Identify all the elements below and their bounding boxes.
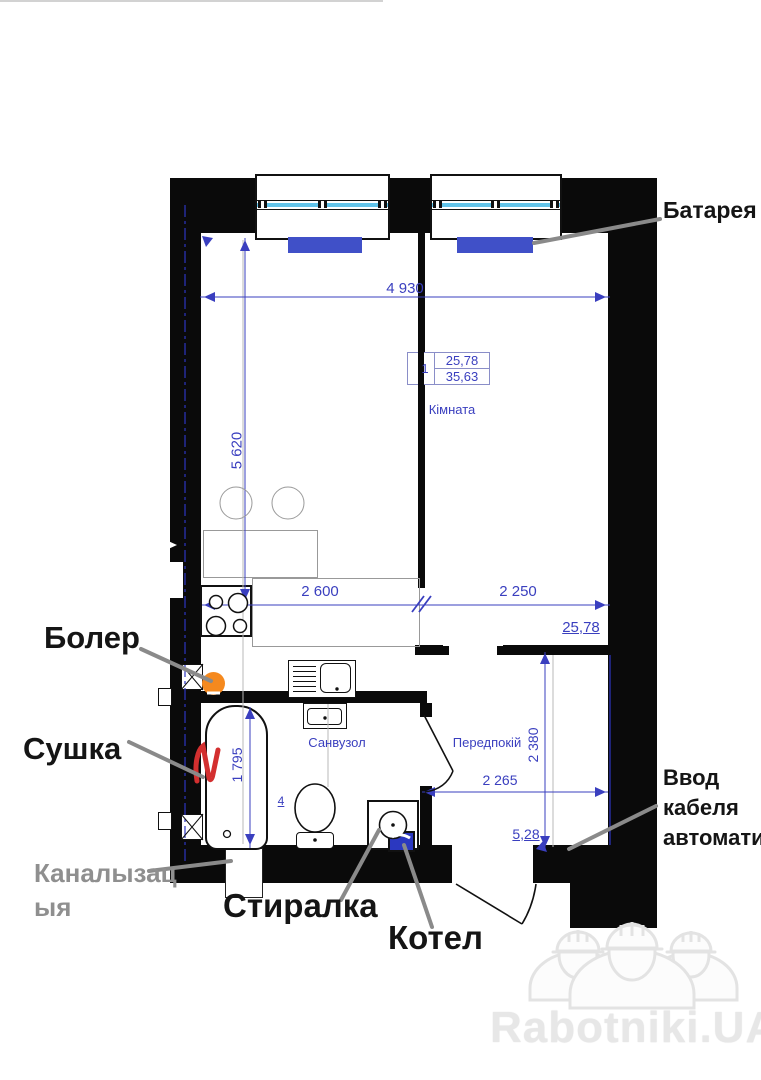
room-living-area: 25,78 — [435, 353, 489, 369]
wall-niche — [167, 562, 183, 598]
room-label-hallway: Передпокій — [437, 735, 537, 750]
wall-bottom-step — [570, 883, 657, 928]
room-number-cell: 1 — [408, 353, 435, 384]
callout-boiler: Болер — [44, 621, 140, 654]
callout-cable-line1: Ввод — [663, 763, 761, 793]
sink-bowl — [320, 663, 351, 693]
window-glazing — [257, 200, 388, 210]
room-stamp: 1 25,78 35,63 — [407, 352, 490, 385]
room-label-main: Кімната — [402, 402, 502, 417]
dim-top-width: 4 930 — [330, 280, 480, 297]
callout-cable-line2: кабеля — [663, 793, 761, 823]
boiler-circle — [202, 672, 225, 695]
dim-kitchen-width: 2 600 — [270, 583, 370, 600]
door-stop-nubs — [443, 646, 503, 655]
room-total-area: 35,63 — [435, 369, 489, 384]
dim-hallway-width: 2 265 — [450, 772, 550, 788]
heater-box — [388, 831, 415, 852]
pipe-stub-lower — [158, 812, 172, 830]
dim-left-height: 5 620 — [229, 407, 246, 495]
window-tick — [378, 201, 387, 208]
wall-hall-top-main — [503, 645, 608, 655]
pipe-stub-upper — [158, 688, 172, 706]
sink-drainboard — [293, 666, 316, 692]
window-tick — [491, 201, 500, 208]
window-tick — [258, 201, 267, 208]
wall-bottom-right — [533, 845, 608, 883]
scan-edge-line — [0, 0, 383, 2]
entrance-door — [456, 884, 536, 924]
vent-box-upper — [181, 664, 203, 690]
callout-sewer-line1: Каналызац — [34, 856, 177, 890]
vent-box-lower — [181, 814, 203, 840]
callout-sewer: Каналызац ыя — [34, 856, 177, 924]
bathroom-door — [424, 715, 453, 792]
callout-dryer: Сушка — [23, 732, 121, 765]
room-number: 1 — [421, 361, 428, 376]
callout-cable-line3: автомати — [663, 823, 761, 853]
room-label-bathroom: Санвузол — [287, 735, 387, 750]
window-right — [430, 174, 562, 240]
callout-sewer-line2: ыя — [34, 890, 177, 924]
dim-room-width: 2 250 — [468, 583, 568, 600]
radiator-right — [457, 237, 533, 253]
watermark-brand: Rabotniki.UA — [490, 1003, 761, 1053]
stove — [200, 585, 252, 637]
callout-radiator: Батарея — [663, 198, 757, 223]
kitchen-counter-upper — [203, 530, 318, 578]
window-tick — [318, 201, 327, 208]
window-tick — [550, 201, 559, 208]
dim-room-area: 25,78 — [551, 619, 611, 636]
bathroom-sink — [303, 703, 347, 729]
bathroom-sink-basin — [307, 708, 342, 725]
wall-bathroom-right-upper — [420, 703, 432, 717]
callout-heater: Котел — [388, 920, 483, 956]
wall-bathroom-right-lower — [420, 786, 432, 845]
callout-washer: Стиралка — [223, 888, 378, 924]
wall-right — [608, 178, 657, 883]
window-left — [255, 174, 390, 240]
kitchen-sink — [288, 660, 356, 698]
dim-hallway-area: 5,28 — [496, 826, 556, 842]
watermark-workers-icon — [530, 922, 737, 1008]
radiator-left — [288, 237, 362, 253]
toilet-tank — [296, 832, 334, 849]
dim-door-width: 4 — [273, 794, 289, 808]
dim-bath-length: 1 795 — [229, 721, 245, 809]
callout-cable: Ввод кабеля автомати — [663, 763, 761, 853]
wall-left — [170, 178, 201, 872]
floor-plan-canvas: 1 25,78 35,63 4 930 5 620 2 600 2 250 25… — [0, 0, 761, 1080]
window-tick — [433, 201, 442, 208]
room-areas-cell: 25,78 35,63 — [435, 353, 489, 384]
wall-top — [170, 178, 657, 233]
window-glazing — [432, 200, 560, 210]
